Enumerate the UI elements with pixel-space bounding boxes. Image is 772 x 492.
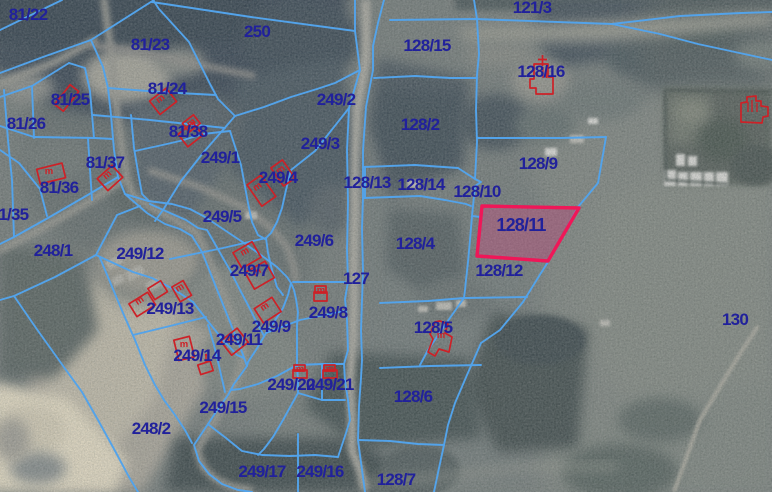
svg-text:249/2: 249/2: [317, 90, 356, 109]
svg-text:121/3: 121/3: [513, 0, 552, 17]
svg-text:128/5: 128/5: [414, 318, 453, 337]
svg-text:128/7: 128/7: [377, 470, 416, 489]
svg-text:249/4: 249/4: [259, 168, 299, 187]
svg-text:128/16: 128/16: [517, 62, 565, 81]
svg-text:128/15: 128/15: [403, 36, 451, 55]
svg-text:81/38: 81/38: [169, 122, 208, 141]
svg-text:81/25: 81/25: [51, 90, 90, 109]
svg-text:249/13: 249/13: [146, 299, 194, 318]
svg-text:249/17: 249/17: [238, 462, 286, 481]
svg-text:249/8: 249/8: [309, 303, 348, 322]
svg-text:m: m: [326, 364, 334, 375]
svg-text:249/15: 249/15: [199, 398, 247, 417]
svg-text:81/24: 81/24: [148, 79, 188, 98]
svg-text:128/6: 128/6: [394, 387, 433, 406]
svg-text:250: 250: [244, 22, 270, 41]
svg-text:249/12: 249/12: [116, 244, 164, 263]
svg-text:81/35: 81/35: [0, 205, 29, 224]
svg-text:128/11: 128/11: [496, 215, 546, 235]
svg-text:128/4: 128/4: [396, 234, 436, 253]
svg-text:128/14: 128/14: [397, 175, 446, 194]
svg-text:130: 130: [722, 310, 748, 329]
svg-text:128/2: 128/2: [401, 115, 440, 134]
svg-text:249/1: 249/1: [201, 148, 240, 167]
svg-text:m: m: [296, 364, 304, 375]
svg-text:249/5: 249/5: [203, 207, 242, 226]
svg-text:249/14: 249/14: [173, 346, 222, 365]
svg-text:81/36: 81/36: [40, 178, 79, 197]
svg-text:128/10: 128/10: [453, 182, 501, 201]
svg-text:249/3: 249/3: [301, 134, 340, 153]
svg-text:128/13: 128/13: [343, 173, 391, 192]
svg-text:81/26: 81/26: [7, 114, 46, 133]
svg-text:128/12: 128/12: [475, 261, 523, 280]
svg-text:128/9: 128/9: [519, 154, 558, 173]
svg-text:249/7: 249/7: [230, 261, 269, 280]
svg-text:248/2: 248/2: [132, 419, 171, 438]
svg-text:249/6: 249/6: [295, 231, 334, 250]
svg-text:249/16: 249/16: [296, 462, 344, 481]
svg-text:m: m: [317, 285, 325, 296]
svg-text:249/11: 249/11: [216, 330, 263, 349]
svg-text:127: 127: [343, 269, 369, 288]
svg-text:248/1: 248/1: [34, 241, 73, 260]
svg-text:249/21: 249/21: [306, 375, 354, 394]
svg-text:81/23: 81/23: [131, 35, 170, 54]
svg-text:m: m: [45, 166, 53, 177]
svg-text:81/22: 81/22: [9, 5, 48, 24]
svg-text:81/37: 81/37: [86, 153, 125, 172]
